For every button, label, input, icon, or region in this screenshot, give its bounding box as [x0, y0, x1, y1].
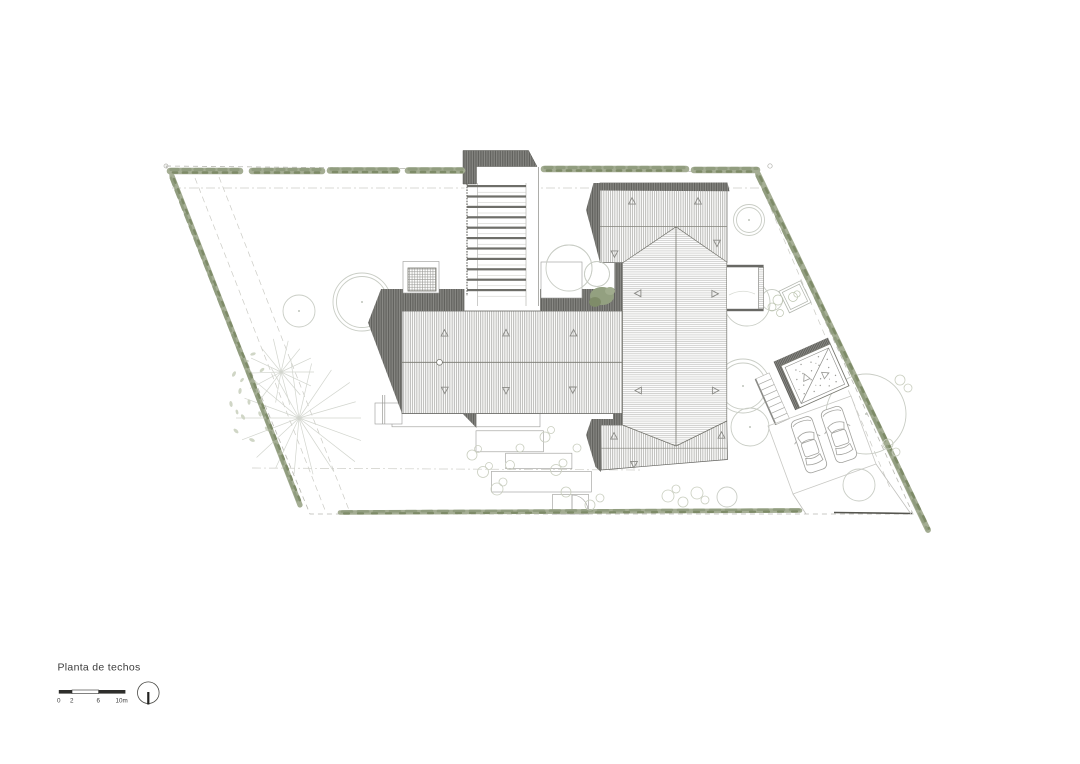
svg-text:6: 6: [97, 698, 101, 705]
svg-text:Planta de techos: Planta de techos: [58, 662, 141, 674]
svg-text:10m: 10m: [116, 698, 128, 705]
svg-text:2: 2: [70, 698, 74, 705]
svg-text:0: 0: [57, 698, 61, 705]
